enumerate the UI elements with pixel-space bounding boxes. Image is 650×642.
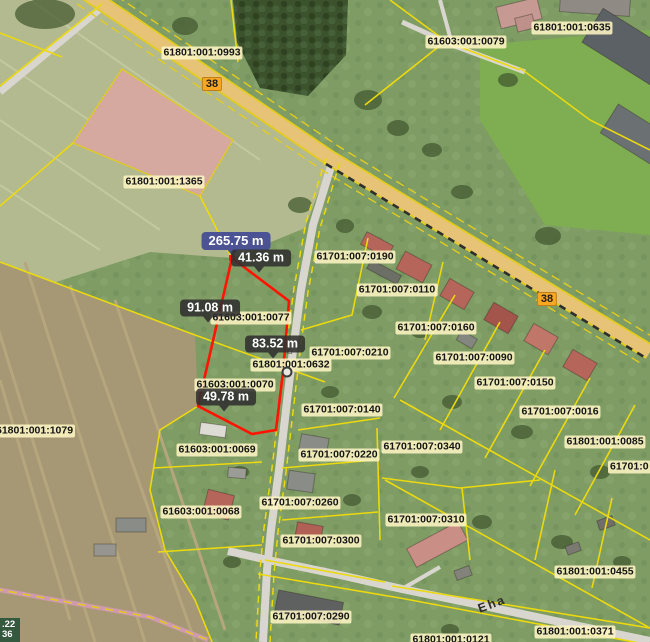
survey-point-icon <box>282 367 293 378</box>
road-number-badge: 38 <box>537 292 557 306</box>
measurement-badge: 91.08 m <box>180 300 240 317</box>
parcel-label: 61801:001:0455 <box>554 566 635 579</box>
parcel-label: 61701:007:0260 <box>259 497 340 510</box>
parcel-label: 61701:007:0290 <box>270 611 351 624</box>
map-canvas[interactable]: 61801:001:099361603:001:007961801:001:06… <box>0 0 650 642</box>
measurement-badge: 83.52 m <box>245 336 305 353</box>
road-number-badge: 38 <box>202 77 222 91</box>
parcel-label: 61801:001:0635 <box>531 22 612 35</box>
parcel-label: 61603:001:0069 <box>176 444 257 457</box>
parcel-label: 61801:001:0121 <box>410 634 491 642</box>
parcel-label: 61801:001:0085 <box>564 436 645 449</box>
parcel-label: 61801:001:0371 <box>534 626 615 639</box>
parcel-label: 61701:007:0310 <box>385 514 466 527</box>
poi-house-icon: ⌂ <box>287 347 293 357</box>
measurement-badge: 41.36 m <box>231 250 291 267</box>
street-name-label: Eha <box>476 592 508 615</box>
measurement-badge: 265.75 m <box>202 232 271 250</box>
parcel-label: 61801:001:0993 <box>161 47 242 60</box>
parcel-label: 61701:007:0150 <box>474 377 555 390</box>
coordinate-line-2: 36 <box>2 630 15 640</box>
parcel-label: 61801:001:1079 <box>0 425 75 438</box>
parcel-label: 61701:007:0090 <box>433 352 514 365</box>
parcel-label: 61701:007:0190 <box>314 251 395 264</box>
parcel-label: 61701:007:0160 <box>395 322 476 335</box>
parcel-label: 61603:001:0079 <box>425 36 506 49</box>
parcel-label: 61701:007:0300 <box>280 535 361 548</box>
parcel-label: 61701:0 <box>608 461 650 474</box>
parcel-label: 61701:007:0140 <box>301 404 382 417</box>
measurement-badge: 49.78 m <box>196 389 256 406</box>
parcel-label: 61701:007:0220 <box>298 449 379 462</box>
labels-layer: 61801:001:099361603:001:007961801:001:06… <box>0 0 650 642</box>
parcel-label: 61701:007:0110 <box>357 284 438 297</box>
parcel-label: 61801:001:1365 <box>123 176 204 189</box>
coordinate-readout: .22 36 <box>0 618 20 642</box>
parcel-label: 61701:007:0340 <box>381 441 462 454</box>
parcel-label: 61603:001:0068 <box>160 506 241 519</box>
parcel-label: 61701:007:0016 <box>519 406 600 419</box>
